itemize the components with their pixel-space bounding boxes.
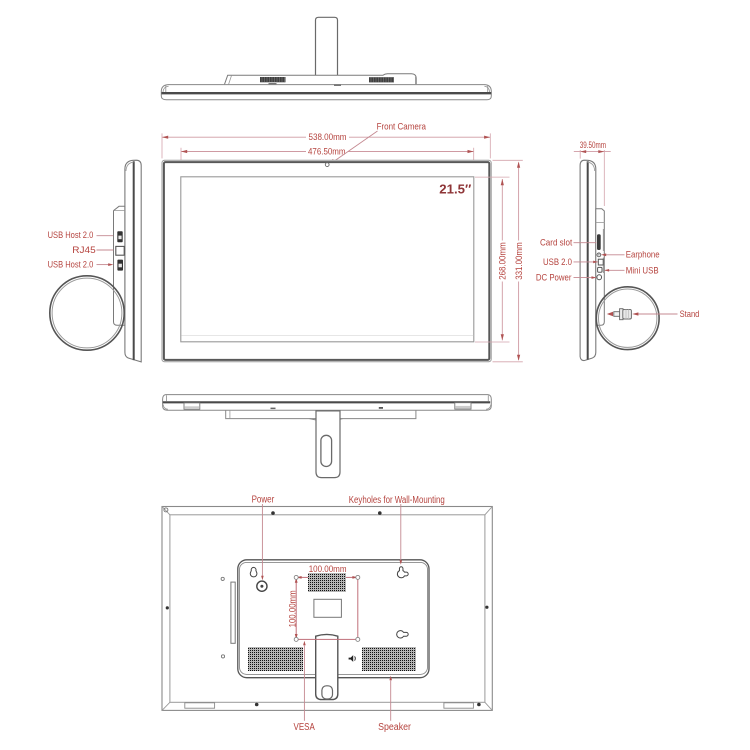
svg-text:USB Host 2.0: USB Host 2.0 bbox=[48, 259, 94, 270]
svg-text:Earphone: Earphone bbox=[626, 250, 660, 261]
svg-text:538.00mm: 538.00mm bbox=[309, 132, 347, 143]
svg-text:100.00mm: 100.00mm bbox=[288, 590, 299, 627]
svg-text:Front Camera: Front Camera bbox=[377, 122, 427, 133]
svg-text:Keyholes for Wall-Mounting: Keyholes for Wall-Mounting bbox=[349, 495, 445, 506]
svg-text:Mini USB: Mini USB bbox=[626, 265, 659, 276]
svg-text:USB 2.0: USB 2.0 bbox=[543, 257, 572, 268]
svg-text:Card slot: Card slot bbox=[540, 238, 573, 249]
svg-text:USB Host 2.0: USB Host 2.0 bbox=[48, 230, 94, 241]
svg-text:Speaker: Speaker bbox=[378, 722, 411, 733]
svg-text:Stand: Stand bbox=[680, 309, 700, 320]
svg-text:RJ45: RJ45 bbox=[72, 245, 95, 256]
svg-text:DC Power: DC Power bbox=[536, 273, 572, 284]
svg-text:21.5″: 21.5″ bbox=[439, 182, 471, 197]
svg-text:Power: Power bbox=[252, 495, 275, 506]
svg-text:268.00mm: 268.00mm bbox=[497, 242, 508, 280]
svg-text:VESA: VESA bbox=[294, 722, 316, 733]
svg-text:476.50mm: 476.50mm bbox=[308, 146, 346, 157]
svg-text:331.00mm: 331.00mm bbox=[514, 242, 525, 280]
svg-text:39.50mm: 39.50mm bbox=[580, 140, 606, 151]
